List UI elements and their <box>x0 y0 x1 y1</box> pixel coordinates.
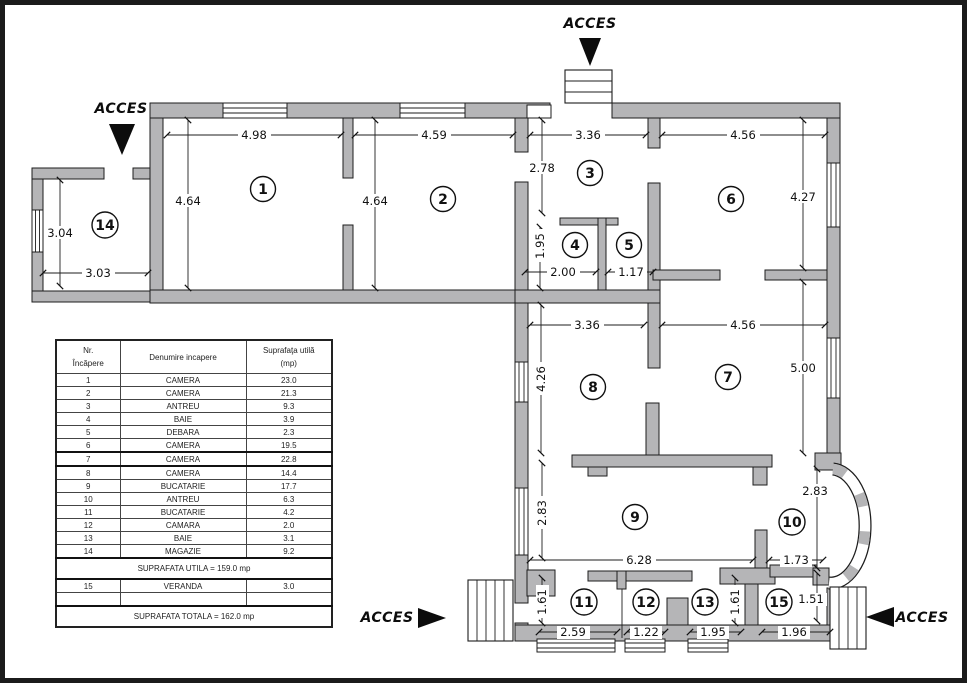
svg-text:10: 10 <box>782 515 802 531</box>
svg-text:4.59: 4.59 <box>421 128 447 142</box>
table-empty-row <box>56 593 332 607</box>
svg-text:5: 5 <box>624 238 634 254</box>
access-arrow-down-icon <box>109 124 135 155</box>
room-label-15: 15 <box>766 589 792 615</box>
table-row: 7CAMERA22.8 <box>56 452 332 466</box>
svg-text:ACCES: ACCES <box>562 16 616 32</box>
access-label-top-left: ACCES <box>93 101 147 155</box>
svg-text:ACCES: ACCES <box>93 101 147 117</box>
window-room12 <box>625 639 665 652</box>
dim-room6-height: 4.27 <box>787 120 820 268</box>
svg-text:5.00: 5.00 <box>790 361 816 375</box>
svg-text:4: 4 <box>570 238 580 254</box>
room-label-2: 2 <box>431 187 456 212</box>
dim-room3-height: 2.78 <box>526 120 559 213</box>
svg-text:4.26: 4.26 <box>534 366 548 392</box>
access-arrow-down-icon <box>579 38 601 66</box>
dim-room13-height: 1.61 <box>728 578 742 623</box>
access-arrow-left-icon <box>866 607 894 627</box>
bay-window-arc <box>829 469 869 584</box>
room-label-4: 4 <box>563 233 588 258</box>
svg-text:14: 14 <box>95 218 115 234</box>
table-row: 12CAMARA2.0 <box>56 519 332 532</box>
table-row: 3ANTREU9.3 <box>56 400 332 413</box>
dim-room12-width: 1.22 <box>627 625 665 639</box>
header-nr: Nr.Încăpere <box>56 340 120 374</box>
access-label-bottom-left: ACCES <box>359 608 446 628</box>
dim-room14-height: 3.04 <box>44 180 77 286</box>
svg-text:3.03: 3.03 <box>85 266 111 280</box>
table-row: 14MAGAZIE9.2 <box>56 545 332 559</box>
svg-text:15: 15 <box>769 595 788 611</box>
svg-text:1.61: 1.61 <box>728 589 742 615</box>
table-row: 9BUCATARIE17.7 <box>56 480 332 493</box>
table-row: 13BAIE3.1 <box>56 532 332 545</box>
svg-text:3.36: 3.36 <box>574 318 600 332</box>
svg-text:ACCES: ACCES <box>894 610 948 626</box>
table-row: 1CAMERA23.0 <box>56 374 332 387</box>
table-row: 2CAMERA21.3 <box>56 387 332 400</box>
access-label-top: ACCES <box>562 16 616 66</box>
svg-text:12: 12 <box>636 595 655 611</box>
svg-text:2.83: 2.83 <box>802 484 828 498</box>
room-label-13: 13 <box>692 589 718 615</box>
svg-text:3: 3 <box>585 166 595 182</box>
svg-text:3.04: 3.04 <box>47 226 73 240</box>
window-room2 <box>400 103 465 118</box>
table-row: 8CAMERA14.4 <box>56 466 332 480</box>
table-subtotal-row: SUPRAFATA UTILA = 159.0 mp <box>56 558 332 579</box>
room-label-12: 12 <box>633 589 659 615</box>
window-room9 <box>515 488 528 555</box>
dim-room2-height: 4.64 <box>359 120 392 288</box>
table-row-veranda: 15VERANDA3.0 <box>56 579 332 593</box>
dim-room8-height: 4.26 <box>534 305 548 453</box>
room-label-10: 10 <box>779 509 805 535</box>
svg-text:4.64: 4.64 <box>175 194 201 208</box>
room-label-11: 11 <box>571 589 597 615</box>
svg-text:7: 7 <box>723 370 733 386</box>
svg-text:4.56: 4.56 <box>730 128 756 142</box>
svg-text:2.59: 2.59 <box>560 625 586 639</box>
access-arrow-right-icon <box>418 608 446 628</box>
window-room8 <box>515 362 528 402</box>
table-total-row: SUPRAFATA TOTALA = 162.0 mp <box>56 606 332 627</box>
area-table: Nr.Încăpere Denumire incapere Suprafaţa … <box>55 339 333 628</box>
svg-text:4.27: 4.27 <box>790 190 816 204</box>
room-label-3: 3 <box>578 161 603 186</box>
header-suprafata: Suprafaţa utilă(mp) <box>246 340 332 374</box>
svg-text:8: 8 <box>588 380 598 396</box>
entrance-door-leaf <box>527 105 551 118</box>
dim-room14-width: 3.03 <box>43 266 148 280</box>
table-row: 5DEBARA2.3 <box>56 426 332 439</box>
svg-text:1.22: 1.22 <box>633 625 659 639</box>
svg-text:ACCES: ACCES <box>359 610 413 626</box>
svg-text:6.28: 6.28 <box>626 553 652 567</box>
svg-text:4.56: 4.56 <box>730 318 756 332</box>
entry-steps-left <box>468 580 513 641</box>
room-label-5: 5 <box>617 233 642 258</box>
dim-room2-width: 4.59 <box>355 128 513 142</box>
svg-text:3.36: 3.36 <box>575 128 601 142</box>
dim-room4-height: 1.95 <box>533 227 547 288</box>
access-label-right: ACCES <box>866 607 949 627</box>
svg-text:13: 13 <box>695 595 714 611</box>
window-room1 <box>223 103 287 118</box>
entry-steps-right <box>830 587 866 649</box>
svg-text:1.96: 1.96 <box>781 625 807 639</box>
dim-room1-height: 4.64 <box>172 120 205 288</box>
dim-room7-height: 5.00 <box>787 282 820 453</box>
svg-text:1.17: 1.17 <box>618 265 644 279</box>
floorplan-page: 4.98 4.59 3.36 4.56 2.00 1.17 3.36 4.56 … <box>0 0 967 683</box>
dim-room7-width: 4.56 <box>662 318 825 332</box>
svg-text:2.00: 2.00 <box>550 265 576 279</box>
svg-text:9: 9 <box>630 510 640 526</box>
svg-text:4.64: 4.64 <box>362 194 388 208</box>
svg-text:2.83: 2.83 <box>535 500 549 526</box>
svg-text:1.51: 1.51 <box>798 592 824 606</box>
dim-room3-width: 3.36 <box>530 128 646 142</box>
header-denumire: Denumire incapere <box>120 340 246 374</box>
svg-text:11: 11 <box>574 595 593 611</box>
table-header-row: Nr.Încăpere Denumire incapere Suprafaţa … <box>56 340 332 374</box>
room-label-8: 8 <box>581 375 606 400</box>
window-room14 <box>32 210 43 252</box>
dim-room1-width: 4.98 <box>167 128 341 142</box>
dim-room5-width: 1.17 <box>608 265 653 279</box>
svg-text:2.78: 2.78 <box>529 161 555 175</box>
svg-text:2: 2 <box>438 192 448 208</box>
room-label-9: 9 <box>623 505 648 530</box>
window-room6 <box>827 163 840 227</box>
room-label-14: 14 <box>92 212 118 238</box>
room-label-7: 7 <box>716 365 741 390</box>
entry-steps-top <box>565 70 612 103</box>
dim-room9-height: 2.83 <box>535 463 549 558</box>
table-row: 6CAMERA19.5 <box>56 439 332 453</box>
svg-text:1: 1 <box>258 182 268 198</box>
dim-room9-width: 6.28 <box>530 553 753 567</box>
window-room13 <box>688 639 728 652</box>
window-room7 <box>827 338 840 398</box>
table-row: 10ANTREU6.3 <box>56 493 332 506</box>
dim-room6-width: 4.56 <box>662 128 825 142</box>
dim-room4-width: 2.00 <box>525 265 596 279</box>
svg-text:1.61: 1.61 <box>535 589 549 615</box>
room-label-1: 1 <box>251 177 276 202</box>
table-row: 11BUCATARIE4.2 <box>56 506 332 519</box>
dim-room8-width: 3.36 <box>530 318 644 332</box>
svg-text:1.95: 1.95 <box>533 233 547 259</box>
window-room11 <box>537 639 615 652</box>
svg-text:6: 6 <box>726 192 736 208</box>
table-row: 4BAIE3.9 <box>56 413 332 426</box>
svg-text:1.73: 1.73 <box>783 553 809 567</box>
svg-text:1.95: 1.95 <box>700 625 726 639</box>
svg-text:4.98: 4.98 <box>241 128 267 142</box>
room-label-6: 6 <box>719 187 744 212</box>
